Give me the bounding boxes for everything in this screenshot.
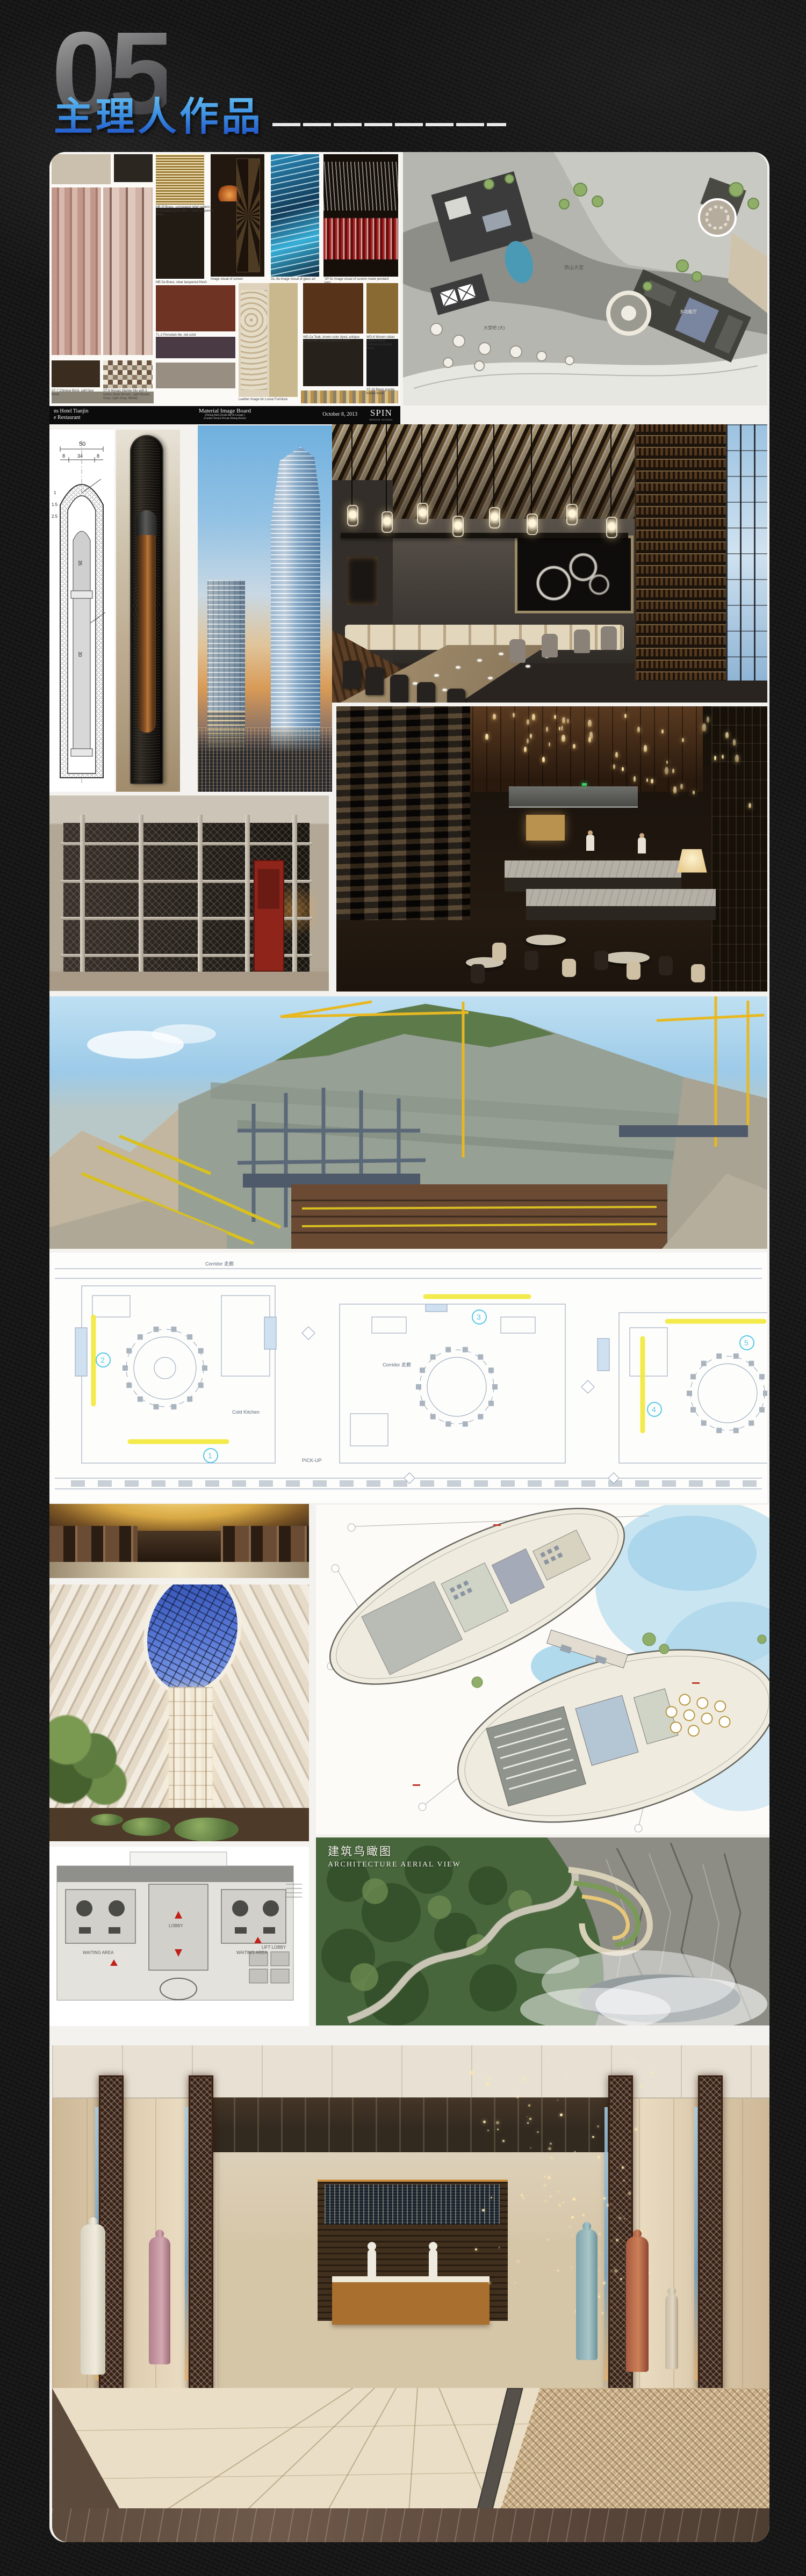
svg-text:WAITING AREA: WAITING AREA — [236, 1950, 268, 1955]
droplet-light — [546, 727, 548, 732]
sparkle-dot — [599, 2252, 601, 2254]
sparkle-dot — [522, 2197, 525, 2199]
material-image-board: ME-5f Brass, corrugated relief pattern, … — [49, 152, 400, 424]
svg-text:Corridor 走廊: Corridor 走廊 — [383, 1362, 411, 1367]
place-setting — [434, 674, 439, 677]
glass-lantern — [527, 513, 538, 535]
sparkle-dot — [569, 2226, 571, 2228]
dining-chair — [574, 629, 590, 653]
place-setting — [456, 666, 460, 669]
city-window — [726, 424, 767, 681]
place-setting — [526, 665, 530, 668]
material-swatch — [366, 283, 398, 334]
droplet-light — [693, 791, 694, 795]
droplet-light — [562, 717, 565, 725]
swatch-caption: ST-2d Black granite, honed finish — [366, 388, 398, 396]
material-swatch — [114, 154, 153, 182]
spin-logo: SPIN DESIGN STUDIO — [370, 408, 393, 421]
photo-pendant-light — [323, 154, 398, 277]
site-plan-drawing: 西山大堂 大堂吧 (大) 多功能厅 — [403, 152, 767, 406]
restaurant-chair — [471, 964, 485, 983]
droplet-light — [644, 745, 647, 753]
restaurant-chair — [627, 961, 641, 980]
sparkle-dot — [640, 2086, 642, 2088]
swatch-japanese-paper-damask — [239, 283, 298, 397]
colored-oval-floor-plans — [316, 1505, 769, 1834]
lobby-ceiling — [52, 2045, 769, 2099]
title-dash — [426, 123, 454, 126]
swatch-caption: SP-5c Image visual of custom made pendan… — [325, 278, 394, 285]
place-setting — [499, 653, 503, 655]
cad-lobby-floor-plan: WAITING AREA LOBBY WAITING AREA LIFT LOB… — [49, 1847, 309, 2026]
sparkle-dot — [496, 2121, 499, 2124]
dining-chair — [417, 682, 435, 703]
droplet-light — [527, 739, 529, 744]
droplet-light — [634, 776, 636, 782]
sparkle-dot — [544, 2184, 546, 2187]
sparkle-dot — [517, 2260, 520, 2263]
restaurant-chair — [492, 943, 506, 961]
swatch-caption: ST-8 Mosaic Marble Mix with 5 colors (Da… — [103, 389, 153, 401]
round-table — [526, 935, 566, 945]
svg-text:34: 34 — [77, 453, 83, 459]
droplet-light — [680, 784, 683, 790]
lattice-pillar — [189, 2075, 213, 2393]
swatch-mosaic-marble — [103, 360, 153, 388]
swatch-caption: WD-2a Teak, brown color dyed, antique pr… — [303, 336, 362, 343]
sparkle-dot — [548, 2239, 549, 2241]
svg-text:1.5: 1.5 — [52, 502, 58, 507]
concrete-floor — [49, 972, 329, 991]
lattice-pillar — [698, 2075, 723, 2393]
marble-counter — [526, 889, 716, 906]
marble-counter — [505, 860, 681, 878]
glass-lantern — [382, 511, 393, 533]
droplet-light — [749, 803, 751, 809]
board-footer-bar: ns Hotel Tianjin e Restaurant Material I… — [49, 406, 400, 424]
title-dash — [303, 123, 331, 126]
exit-sign — [582, 783, 587, 786]
svg-text:大堂吧 (大): 大堂吧 (大) — [484, 325, 505, 330]
dining-chair — [542, 634, 558, 657]
seat-rows — [71, 1327, 767, 1487]
sparkle-dot — [649, 2273, 650, 2274]
sparkle-dot — [557, 2191, 559, 2193]
swatch-caption: WD-6 Woven rattan applied dyed, urethane… — [366, 336, 398, 351]
place-setting — [477, 659, 482, 662]
sparkle-dot — [565, 2074, 567, 2076]
svg-text:30: 30 — [77, 652, 83, 657]
droplet-light — [714, 756, 716, 761]
material-swatch — [156, 208, 204, 279]
swatch-caption: GL-9a Image visual of glass art — [271, 278, 317, 281]
reception-desk — [332, 2276, 490, 2325]
kitchen-hood — [509, 786, 638, 808]
svg-text:西山大堂: 西山大堂 — [564, 264, 584, 270]
sparkle-dot — [582, 2214, 585, 2216]
svg-text:1: 1 — [54, 490, 56, 495]
statue-pink — [149, 2237, 170, 2364]
photo-glass-art — [271, 154, 319, 277]
sparkle-dot — [618, 2217, 621, 2219]
chef-figure — [586, 835, 594, 851]
counter-sculpture — [368, 2249, 376, 2279]
statue-white — [81, 2224, 105, 2375]
photo-facade-mockup-construction — [49, 795, 329, 991]
restaurant-chair — [659, 956, 673, 975]
sparkle-dot — [545, 2201, 546, 2202]
sparkle-dot — [644, 2099, 646, 2101]
lobby-plan-drawing: WAITING AREA LOBBY WAITING AREA LIFT LOB… — [49, 1847, 309, 2026]
sparkle-dot — [550, 2196, 551, 2197]
svg-text:50: 50 — [79, 441, 85, 447]
droplet-light — [493, 714, 495, 721]
droplet-light — [562, 735, 565, 743]
svg-text:1: 1 — [208, 1451, 212, 1460]
chef-figure — [638, 837, 646, 853]
restaurant-chair — [691, 964, 705, 982]
droplet-light — [530, 734, 532, 739]
sparkle-dot — [557, 2100, 558, 2101]
sparkle-dot — [475, 2248, 477, 2251]
swatch-caption: TL-2 Porcelain tile, red color — [156, 334, 231, 337]
sparkle-dot — [597, 2270, 598, 2271]
handle-ferrule — [136, 510, 157, 538]
banquet-plan-drawing: 2 1 3 4 5 Corridor 走廊 Corridor 走廊 Cold K… — [49, 1253, 767, 1503]
svg-text:PICK-UP: PICK-UP — [302, 1458, 322, 1463]
photo-door-handle — [116, 430, 180, 792]
svg-text:4: 4 — [652, 1405, 656, 1414]
droplet-light — [702, 723, 706, 733]
wall-artwork — [515, 536, 634, 613]
sparkle-dot — [499, 2247, 500, 2248]
oval-plans-drawing — [316, 1505, 769, 1834]
svg-text:Corridor 走廊: Corridor 走廊 — [205, 1261, 234, 1267]
title-dash — [364, 123, 392, 126]
droplet-light — [665, 767, 668, 776]
cad-banquet-floor-plan: 2 1 3 4 5 Corridor 走廊 Corridor 走廊 Cold K… — [49, 1253, 767, 1503]
droplet-light — [588, 720, 591, 728]
sparkle-dot — [571, 2267, 572, 2268]
woven-metal-wall — [336, 706, 470, 920]
sparkle-dot — [482, 2209, 485, 2212]
svg-text:2: 2 — [100, 1356, 105, 1364]
city-skyline — [198, 727, 332, 792]
sparkle-dot — [514, 2282, 516, 2284]
round-table — [603, 952, 650, 964]
sparkle-dot — [548, 2060, 549, 2061]
dining-chair — [343, 661, 361, 689]
sparkle-dot — [622, 2166, 624, 2168]
title-dash — [487, 123, 506, 126]
steel-post — [139, 815, 143, 981]
glass-lantern — [347, 505, 358, 526]
sparkle-dot — [598, 2296, 600, 2298]
floor-lamp — [677, 849, 707, 873]
sparkle-dot — [563, 2202, 564, 2203]
scaffolding — [291, 1184, 667, 1249]
glass-lantern — [489, 507, 500, 529]
sparkle-dot — [544, 2176, 545, 2177]
photo-gold-ceiling-corridor — [49, 1504, 309, 1578]
material-swatch — [156, 337, 235, 358]
reflective-glass-wall — [711, 706, 767, 992]
glass-lantern — [452, 516, 464, 537]
material-swatch — [156, 363, 235, 388]
glass-lantern — [566, 504, 578, 525]
statue-red — [626, 2237, 649, 2372]
sparkle-dot — [607, 2204, 609, 2206]
sparkle-dot — [599, 2233, 601, 2234]
red-door — [254, 860, 284, 971]
material-swatch — [52, 360, 100, 387]
sparkle-dot — [548, 2176, 550, 2179]
swatch-caption: Leather Image for Loose Furniture — [239, 398, 298, 402]
swatch-caption: ME-5a Brass, clear lacquered finish — [156, 281, 231, 285]
glass-lantern — [417, 503, 428, 524]
dining-chair — [509, 639, 526, 663]
sparkle-dot — [483, 2121, 486, 2123]
svg-text:LIFT LOBBY: LIFT LOBBY — [262, 1945, 286, 1950]
sparkle-dot — [650, 2072, 653, 2074]
svg-text:WAITING AREA: WAITING AREA — [83, 1950, 114, 1955]
svg-text:8: 8 — [97, 453, 99, 459]
panorama-scene — [49, 996, 767, 1249]
steel-post — [292, 815, 297, 981]
sparkle-dot — [571, 2235, 573, 2237]
backlit-menu — [526, 815, 565, 841]
svg-text:2.5: 2.5 — [52, 514, 58, 519]
place-setting — [442, 689, 447, 691]
steel-post — [198, 815, 203, 981]
site-plan-render: 西山大堂 大堂吧 (大) 多功能厅 — [403, 152, 767, 406]
dining-chair — [601, 626, 617, 650]
photo-restaurant-droplet-lights — [336, 706, 767, 992]
title-dash — [456, 123, 484, 126]
material-swatch — [303, 339, 363, 386]
svg-text:8: 8 — [62, 453, 65, 459]
sparkle-dot — [624, 2218, 625, 2219]
glass-lantern — [606, 517, 617, 538]
sparkle-dot — [550, 2157, 553, 2159]
title-dash-line — [272, 123, 506, 126]
photo-private-dining-room — [332, 424, 767, 703]
sparkle-dot — [550, 2143, 552, 2145]
svg-text:多功能厅: 多功能厅 — [680, 309, 697, 314]
photo-classical-facade — [103, 187, 153, 355]
title-dash — [272, 123, 300, 126]
stone-floor — [49, 1562, 309, 1578]
indoor-tree — [49, 1707, 143, 1815]
sparkle-dot — [560, 2114, 563, 2116]
droplet-light — [707, 717, 709, 723]
sparkle-dot — [598, 2156, 600, 2158]
cad-column-detail-sheet: 50 8 34 8 1 1.5 2.5 35 30 — [49, 430, 114, 792]
board-date: October 8, 2013 — [322, 411, 357, 417]
dining-chair — [390, 675, 408, 703]
wine-display-wall — [635, 424, 728, 681]
sparkle-dot — [558, 2204, 560, 2206]
photo-hotel-atrium — [49, 1584, 309, 1841]
svg-text:LOBBY: LOBBY — [169, 1923, 183, 1928]
material-swatch — [52, 154, 111, 184]
restaurant-chair — [524, 951, 538, 970]
dining-chair — [365, 667, 384, 695]
swatch-caption: ST-7 Chinese Brick, split face finish — [52, 389, 100, 397]
sparkle-dot — [470, 2071, 473, 2074]
droplet-light — [725, 732, 728, 739]
steel-post — [245, 815, 250, 981]
counter-sculpture — [429, 2249, 437, 2279]
statue-small — [665, 2294, 678, 2369]
render-skyscraper-dusk — [198, 425, 332, 792]
droplet-light — [622, 767, 623, 771]
sparkle-dot — [527, 2122, 528, 2123]
restaurant-chair — [562, 959, 576, 977]
sparkle-dot — [628, 2192, 631, 2195]
droplet-light — [561, 726, 563, 731]
droplet-light — [542, 757, 545, 764]
droplet-light — [722, 755, 724, 759]
swatch-brass-corrugated — [156, 154, 204, 205]
svg-text:Cold Kitchen: Cold Kitchen — [232, 1409, 260, 1415]
steel-rail — [61, 842, 312, 845]
material-swatch — [303, 283, 363, 334]
photo-classical-column — [52, 187, 101, 355]
yellow-highlights — [93, 1297, 764, 1442]
photo-construction-site-panorama — [49, 996, 767, 1249]
dining-chair — [447, 689, 465, 703]
sparkle-dot — [597, 2125, 599, 2128]
sparkle-dot — [521, 2194, 522, 2196]
swatch-caption: ME-5f Brass, corrugated relief pattern, … — [156, 206, 220, 217]
poster-page: 05 主理人作品 ME-5f Brass, corrugated relief … — [0, 0, 806, 2576]
planting-mound — [174, 1818, 239, 1841]
sparkle-dot — [486, 2083, 488, 2086]
steel-post — [80, 815, 85, 981]
statue-teal — [576, 2229, 598, 2360]
droplet-light — [735, 755, 739, 763]
title-dash — [395, 123, 423, 126]
cad-column-drawing: 50 8 34 8 1 1.5 2.5 35 30 — [49, 430, 114, 792]
place-setting — [488, 677, 493, 679]
aerial-caption: 建筑鸟瞰图 ARCHITECTURE AERIAL VIEW — [328, 1843, 461, 1869]
sparkle-dot — [557, 2270, 559, 2271]
sparkle-dot — [573, 2198, 575, 2201]
svg-text:35: 35 — [77, 560, 83, 566]
droplet-light — [573, 744, 575, 749]
sparkle-dot — [614, 2269, 617, 2272]
dark-marble-border — [52, 2508, 769, 2542]
sparkle-dot — [529, 2118, 531, 2120]
render-grand-hotel-lobby — [52, 2045, 769, 2542]
sparkle-dot — [616, 2239, 618, 2241]
handle-wood-grip — [138, 535, 156, 733]
restaurant-chair — [594, 951, 608, 970]
page-title: 主理人作品 — [54, 85, 263, 142]
sparkle-dot — [571, 2216, 573, 2218]
svg-text:5: 5 — [744, 1338, 749, 1347]
droplet-light — [651, 779, 653, 784]
pendant-beam — [341, 533, 628, 538]
svg-text:3: 3 — [477, 1313, 481, 1321]
render-architecture-aerial-view: 建筑鸟瞰图 ARCHITECTURE AERIAL VIEW — [316, 1837, 769, 2025]
sparkle-dot — [623, 2180, 624, 2181]
marble-floor — [52, 2388, 769, 2542]
material-swatch — [156, 285, 235, 331]
city-light-band — [325, 2184, 500, 2224]
sparkle-dot — [602, 2312, 603, 2314]
title-dash — [334, 123, 362, 126]
droplet-light — [637, 727, 640, 733]
droplet-light — [673, 786, 677, 794]
glass-elevator-columns — [169, 1687, 213, 1815]
